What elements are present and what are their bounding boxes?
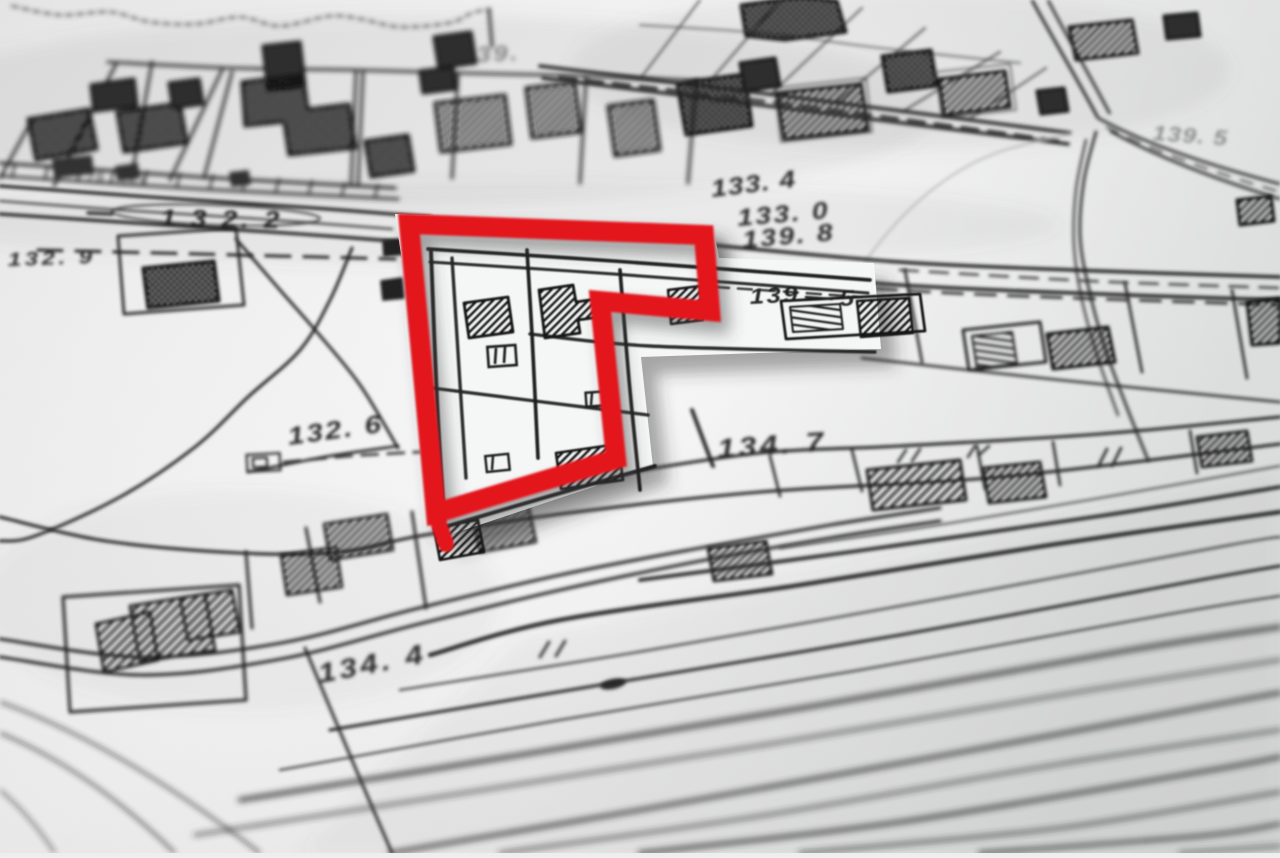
svg-text:5: 5 bbox=[839, 286, 857, 312]
svg-text:132. 9: 132. 9 bbox=[7, 246, 96, 271]
svg-text:139: 139 bbox=[749, 282, 801, 309]
